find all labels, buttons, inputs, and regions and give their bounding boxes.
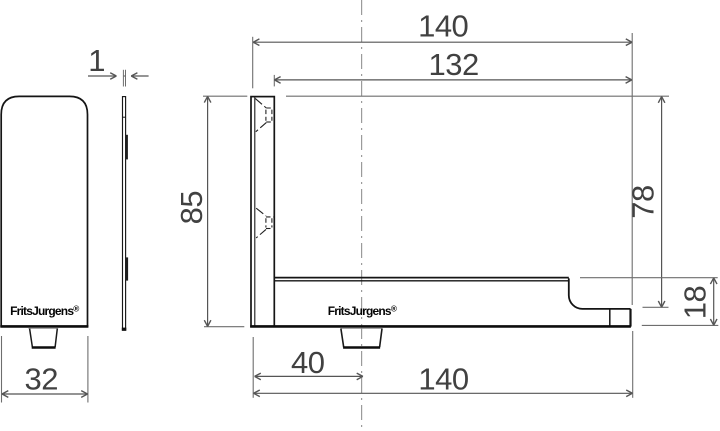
svg-text:140: 140 xyxy=(418,8,468,43)
svg-text:78: 78 xyxy=(626,185,661,218)
svg-text:40: 40 xyxy=(291,345,325,380)
svg-text:18: 18 xyxy=(678,286,713,319)
svg-text:1: 1 xyxy=(88,43,105,78)
svg-text:140: 140 xyxy=(418,361,468,396)
svg-text:132: 132 xyxy=(428,47,478,82)
svg-text:32: 32 xyxy=(25,362,58,397)
svg-text:FritsJurgens®: FritsJurgens® xyxy=(328,304,397,318)
svg-text:FritsJurgens®: FritsJurgens® xyxy=(10,304,79,318)
svg-text:85: 85 xyxy=(174,191,209,224)
